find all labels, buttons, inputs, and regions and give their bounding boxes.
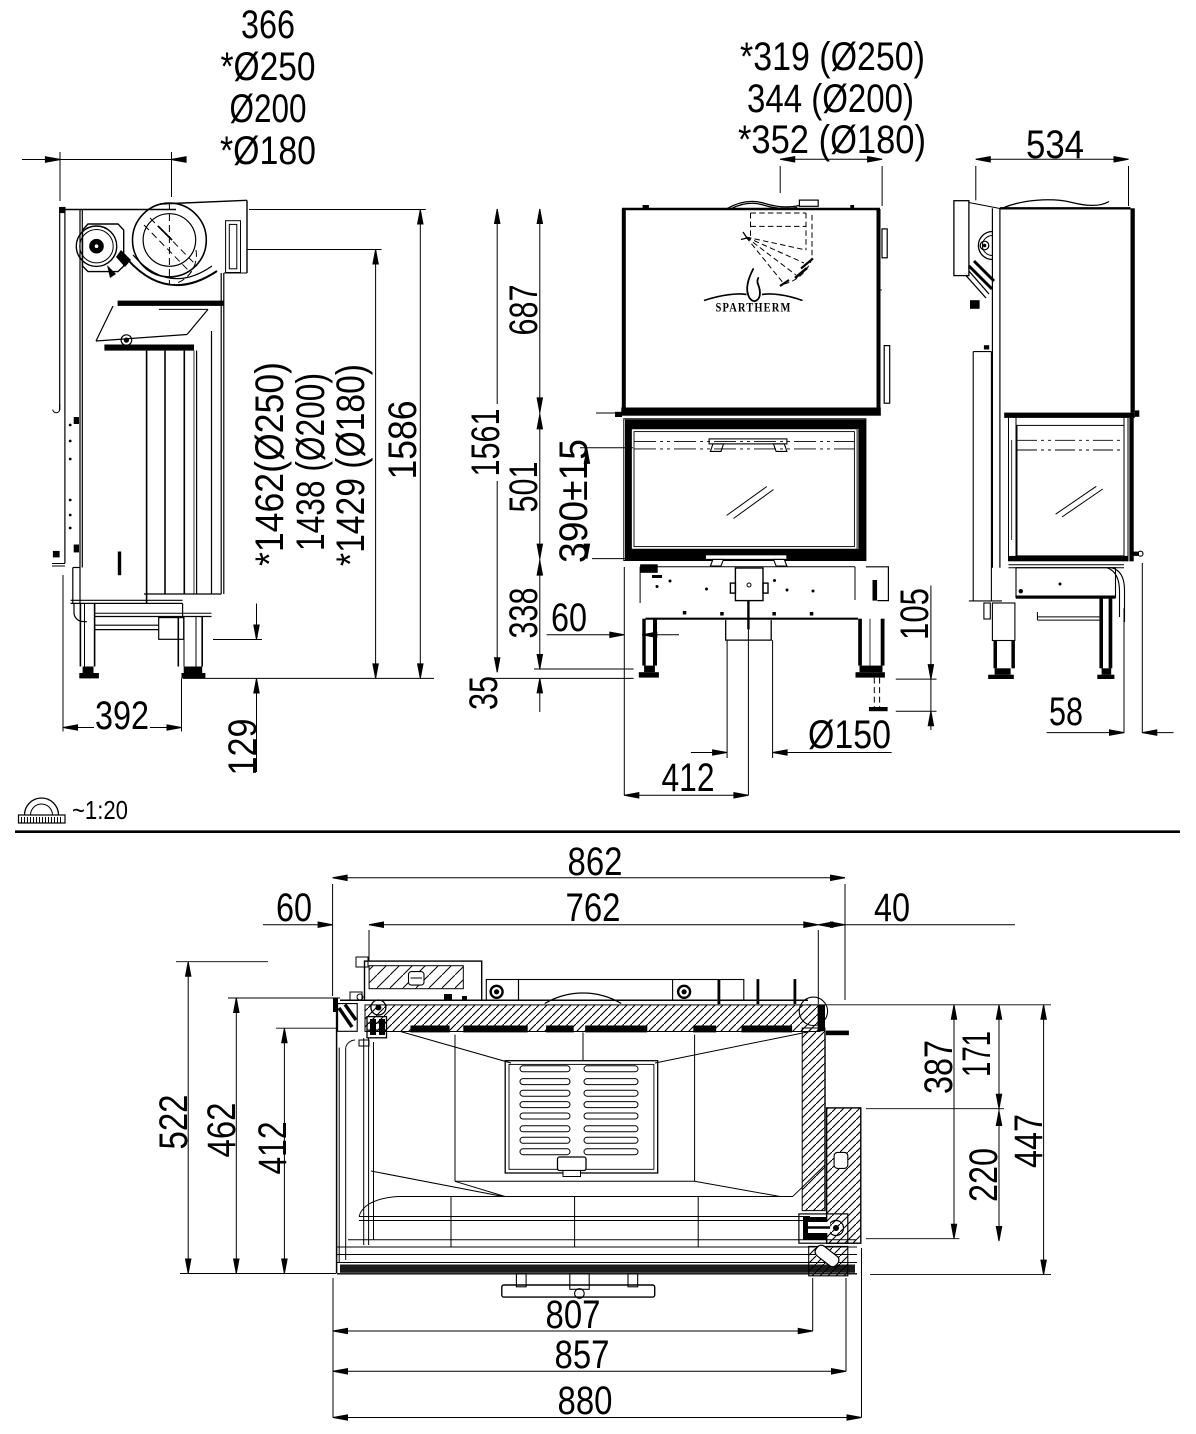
svg-text:*Ø250: *Ø250 xyxy=(221,45,316,89)
svg-text:412: 412 xyxy=(251,1122,295,1175)
svg-text:880: 880 xyxy=(558,1379,613,1423)
svg-text:171: 171 xyxy=(955,1031,999,1077)
svg-text:1438 (Ø200): 1438 (Ø200) xyxy=(289,373,333,551)
svg-text:220: 220 xyxy=(962,1148,1006,1202)
svg-text:390±15: 390±15 xyxy=(552,439,596,563)
svg-text:60: 60 xyxy=(551,596,587,640)
svg-text:Ø150: Ø150 xyxy=(808,713,891,757)
svg-text:344 (Ø200): 344 (Ø200) xyxy=(747,77,914,121)
svg-text:762: 762 xyxy=(566,886,621,930)
svg-text:462: 462 xyxy=(200,1103,244,1158)
svg-text:129: 129 xyxy=(221,719,265,776)
svg-text:~1:20: ~1:20 xyxy=(72,795,128,825)
svg-text:*1429 (Ø180): *1429 (Ø180) xyxy=(329,364,373,566)
svg-text:1586: 1586 xyxy=(381,401,425,480)
svg-text:*Ø180: *Ø180 xyxy=(220,129,316,173)
svg-text:857: 857 xyxy=(555,1333,610,1377)
svg-text:687: 687 xyxy=(502,285,546,336)
svg-text:60: 60 xyxy=(276,886,312,930)
svg-text:105: 105 xyxy=(893,588,937,640)
svg-text:*1462(Ø250): *1462(Ø250) xyxy=(248,362,292,566)
svg-text:534: 534 xyxy=(1026,123,1084,167)
svg-text:*352 (Ø180): *352 (Ø180) xyxy=(738,118,926,162)
svg-text:366: 366 xyxy=(241,3,295,47)
svg-text:Ø200: Ø200 xyxy=(230,87,307,131)
svg-text:412: 412 xyxy=(662,756,715,800)
svg-text:338: 338 xyxy=(502,588,546,639)
svg-text:58: 58 xyxy=(1049,690,1083,734)
svg-text:501: 501 xyxy=(502,462,546,513)
svg-text:522: 522 xyxy=(152,1095,196,1150)
svg-text:*319 (Ø250): *319 (Ø250) xyxy=(740,35,925,79)
svg-text:SPARTHERM: SPARTHERM xyxy=(716,300,792,315)
svg-text:447: 447 xyxy=(1007,1114,1051,1168)
svg-text:35: 35 xyxy=(462,676,506,710)
svg-text:807: 807 xyxy=(546,1293,601,1337)
svg-text:392: 392 xyxy=(95,694,149,738)
svg-text:40: 40 xyxy=(874,886,910,930)
